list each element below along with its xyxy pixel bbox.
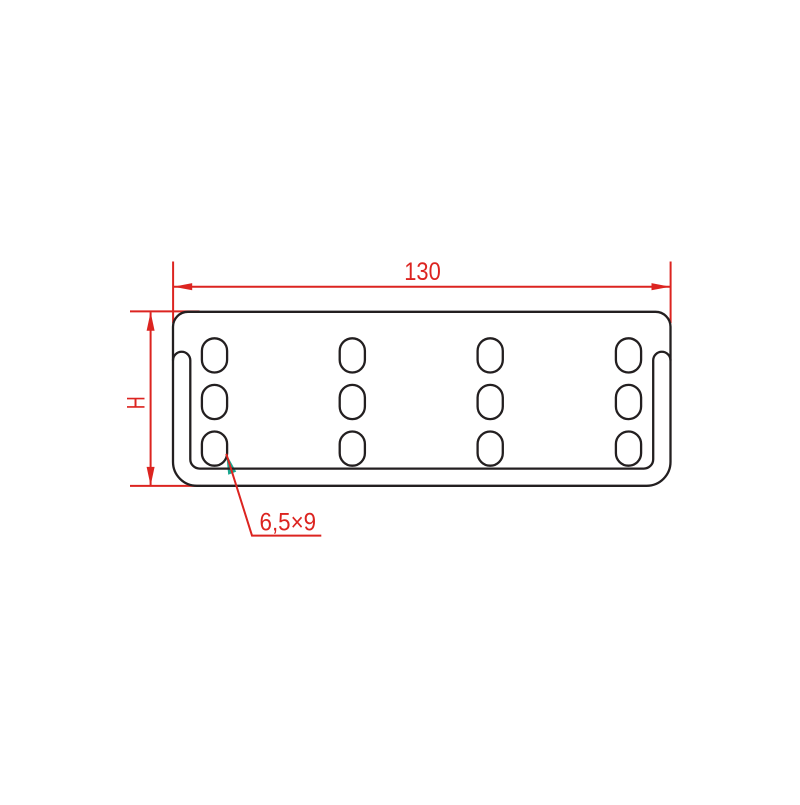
- svg-text:6,5×9: 6,5×9: [260, 509, 317, 537]
- svg-text:H: H: [122, 396, 150, 409]
- svg-text:130: 130: [404, 258, 441, 286]
